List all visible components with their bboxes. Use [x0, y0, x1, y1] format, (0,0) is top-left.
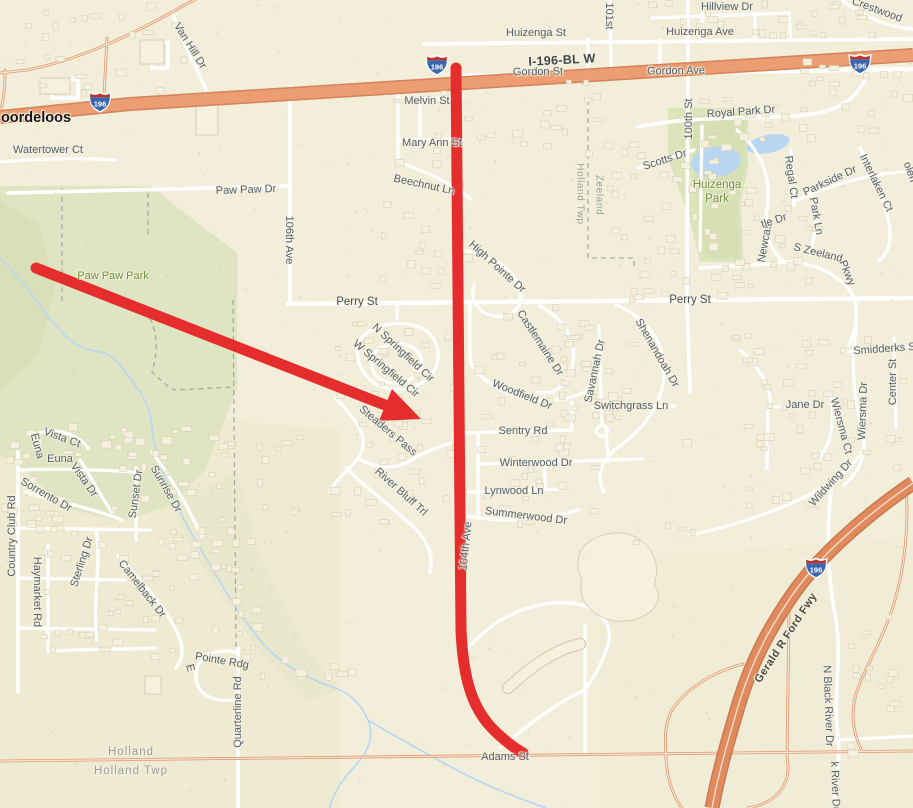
- map-canvas[interactable]: 196196196196 Hillview DrCrestwoodHuizeng…: [0, 0, 913, 808]
- svg-text:196: 196: [94, 100, 107, 109]
- map-layers: 196196196196: [0, 0, 913, 808]
- svg-text:196: 196: [810, 566, 823, 575]
- svg-text:196: 196: [854, 62, 867, 71]
- svg-text:196: 196: [431, 63, 444, 72]
